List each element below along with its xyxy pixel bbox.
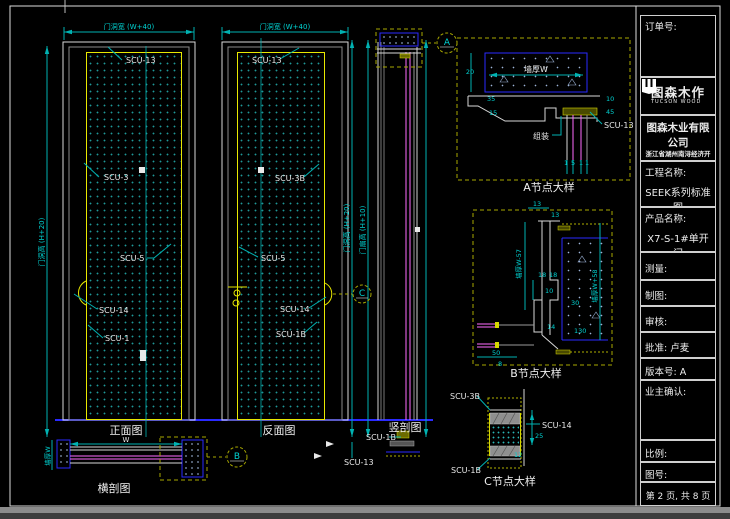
hsection-wall-dim: 墙厚W <box>43 446 52 466</box>
company-address-line1: 浙江省湖州南浔经济开发区 <box>643 150 713 161</box>
detail-b-left-dim: 墙厚W-57 <box>514 249 523 279</box>
dim-label: 35 <box>487 95 495 103</box>
marker-b: B <box>234 452 240 462</box>
dim-label: 30 <box>571 299 579 307</box>
dim-label: 5 <box>571 159 575 167</box>
owner-confirm-cell: 业主确认: <box>640 380 716 440</box>
hsection-width-dim: W <box>123 436 130 444</box>
dim-label: 50 <box>492 349 500 357</box>
part-label: SCU-14 <box>542 421 572 430</box>
approve-cell: 批准: 卢麦 <box>640 332 716 358</box>
detail-b-caption: B节点大样 <box>510 366 562 380</box>
version-label: 版本号: A <box>645 367 686 378</box>
part-label: SCU-13 <box>604 121 634 130</box>
front-door-handle <box>140 350 146 361</box>
dim-label: 1 <box>579 159 583 167</box>
back-caption: 反面图 <box>263 424 296 437</box>
detail-c: SCU-3B SCU-1B SCU-14 25 12 C节点大样 <box>450 389 572 488</box>
part-label: SCU-5 <box>261 254 286 263</box>
vsection-caption: 竖剖图 <box>389 420 422 434</box>
part-label: SCU-13 <box>344 458 374 467</box>
dim-label: 1 <box>585 159 589 167</box>
part-label: SCU-1B <box>366 433 396 442</box>
drawing-number-label: 图号: <box>645 470 667 481</box>
front-height-dim: 门洞高 (H+20) <box>37 217 46 266</box>
dim-label: 20 <box>466 68 474 76</box>
dim-label: 13 <box>551 211 559 219</box>
marker-c: C <box>359 289 365 299</box>
back-lock-edge-arc <box>325 283 332 305</box>
order-number-label: 订单号: <box>645 22 677 33</box>
draft-label: 制图: <box>645 291 667 302</box>
horizontal-section: W 墙厚W 横剖图 <box>43 436 226 495</box>
front-width-dim: 门洞宽 (W+40) <box>104 22 155 31</box>
page-info: 第 2 页, 共 8 页 <box>646 492 711 502</box>
part-label: SCU-1B <box>451 466 481 475</box>
dim-label: 18 <box>549 271 557 279</box>
order-number-cell: 订单号: <box>640 15 716 77</box>
part-label: SCU-3B <box>275 174 305 183</box>
detail-a-caption: A节点大样 <box>523 180 575 194</box>
part-label: SCU-13 <box>126 56 156 65</box>
part-label: SCU-5 <box>120 254 145 263</box>
part-label: SCU-13 <box>252 56 282 65</box>
logo-subtitle: TUCSON WOOD <box>651 100 705 105</box>
detail-b-right-dim: 墙厚W+58 <box>590 269 599 302</box>
dim-label: 1 <box>564 159 568 167</box>
dim-label: 45 <box>606 108 614 116</box>
dim-label: 13 <box>533 200 541 208</box>
back-door-viewer <box>258 167 264 173</box>
logo-name: 图森木作 <box>651 87 705 100</box>
drawing-number-cell: 图号: <box>640 462 716 482</box>
part-label: SCU-1 <box>105 334 130 343</box>
review-cell: 审核: <box>640 306 716 332</box>
part-label: SCU-1B <box>276 330 306 339</box>
part-label: SCU-3B <box>450 392 480 401</box>
dim-label: 18 <box>538 271 546 279</box>
product-name-value: X7-S-1#单开门 <box>645 230 711 252</box>
dim-label: 25 <box>535 432 543 440</box>
cad-screenshot: { "views": { "front": { "caption": "正面图"… <box>0 0 730 519</box>
marker-a: A <box>444 38 451 48</box>
approve-label: 批准: 卢麦 <box>645 343 689 354</box>
dim-label: 12 <box>514 451 522 459</box>
scale-label: 比例: <box>645 449 667 460</box>
logo-cell: 图森木作 TUCSON WOOD <box>640 77 716 115</box>
part-label: SCU-3 <box>104 173 129 182</box>
window-bottom-edge <box>0 513 730 519</box>
project-name-label: 工程名称: <box>645 168 686 179</box>
part-label: SCU-14 <box>280 305 310 314</box>
review-label: 审核: <box>645 317 667 328</box>
front-elevation: 门洞宽 (W+40) 门洞高 (H+20) SCU-13 SCU-3 SCU-5… <box>37 22 195 437</box>
title-block: 订单号: 图森木作 TUCSON WOOD 图森木业有限公司 浙江省湖州南浔经济… <box>636 6 720 506</box>
vsection-leaf-dim: 门扇高 (H+10) <box>358 205 367 254</box>
part-label: SCU-14 <box>99 306 129 315</box>
survey-label: 测量: <box>645 264 667 275</box>
front-door-viewer <box>139 167 145 173</box>
detail-a: 墙厚W 20 35 15 10 45 1 5 1 1 组装 SCU-13 A节点… <box>457 38 634 194</box>
dim-label: 8 <box>498 360 502 368</box>
project-name-cell: 工程名称: SEEK系列标准图 <box>640 161 716 207</box>
page-info-cell: 第 2 页, 共 8 页 <box>640 482 716 506</box>
dim-label: 15 <box>489 109 497 117</box>
vertical-section: 门洞高 (H+20) 门扇高 (H+10) SCU-1B SCU-13 竖剖图 <box>314 29 436 467</box>
vsection-opening-dim: 门洞高 (H+20) <box>342 203 351 252</box>
back-width-dim: 门洞宽 (W+40) <box>260 22 311 31</box>
version-cell: 版本号: A <box>640 358 716 380</box>
dim-label: 130 <box>574 327 586 335</box>
draft-cell: 制图: <box>640 280 716 306</box>
dim-label: 10 <box>545 287 553 295</box>
company-name: 图森木业有限公司 <box>643 120 713 150</box>
product-name-label: 产品名称: <box>645 214 686 225</box>
detail-c-caption: C节点大样 <box>484 474 536 488</box>
dim-label: 10 <box>606 95 614 103</box>
project-name-value: SEEK系列标准图 <box>645 184 711 207</box>
drawing-canvas: 门洞宽 (W+40) 门洞高 (H+20) SCU-13 SCU-3 SCU-5… <box>0 0 730 519</box>
back-elevation: 门洞宽 (W+40) SCU-13 SCU-3B SCU-5 SCU-14 SC… <box>222 22 348 437</box>
scale-cell: 比例: <box>640 440 716 462</box>
product-name-cell: 产品名称: X7-S-1#单开门 <box>640 207 716 252</box>
detail-a-wall-dim: 墙厚W <box>524 64 548 74</box>
hsection-caption: 横剖图 <box>98 481 131 495</box>
tucson-logo-icon <box>641 78 657 94</box>
dim-label: 14 <box>547 323 555 331</box>
detail-b: 墙厚W-57 墙厚W+58 13 13 18 18 10 14 30 130 5… <box>473 200 612 380</box>
company-cell: 图森木业有限公司 浙江省湖州南浔经济开发区 强盛路1号 <box>640 115 716 161</box>
assembly-label: 组装 <box>533 131 549 141</box>
survey-cell: 测量: <box>640 252 716 280</box>
owner-confirm-label: 业主确认: <box>645 387 686 398</box>
